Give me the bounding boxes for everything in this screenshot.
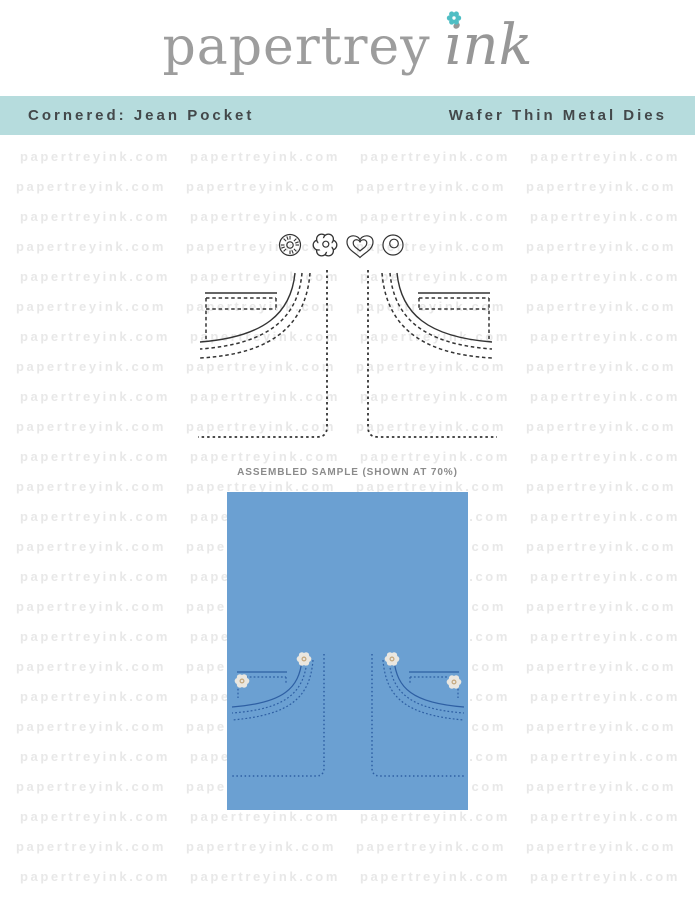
heart-die-icon <box>347 236 373 258</box>
product-image-page: papertreyink.compapertreyink.compapertre… <box>0 0 695 900</box>
watermark-text: papertreyink.com <box>526 292 695 322</box>
watermark-text: papertreyink.com <box>20 802 190 832</box>
watermark-text: papertreyink.com <box>526 532 695 562</box>
watermark-text: papertreyink.com <box>20 202 190 232</box>
watermark-text: papertreyink.com <box>530 502 695 532</box>
watermark-text: papertreyink.com <box>360 142 530 172</box>
watermark-text: papertreyink.com <box>530 382 695 412</box>
watermark-text: papertreyink.com <box>20 742 190 772</box>
watermark-text: papertreyink.com <box>356 172 526 202</box>
watermark-text: papertreyink.com <box>190 862 360 892</box>
watermark-row: papertreyink.compapertreyink.compapertre… <box>0 862 695 892</box>
watermark-text: papertreyink.com <box>20 142 190 172</box>
watermark-text: papertreyink.com <box>530 262 695 292</box>
flower-button-icon <box>385 652 400 665</box>
right-pocket-die <box>368 270 497 437</box>
watermark-text: papertreyink.com <box>530 862 695 892</box>
watermark-text: papertreyink.com <box>530 802 695 832</box>
watermark-text: papertreyink.com <box>16 232 186 262</box>
jean-pocket-die-outlines <box>190 265 505 447</box>
watermark-text: papertreyink.com <box>526 352 695 382</box>
sample-right-pocket <box>372 654 464 776</box>
flower-button-icon <box>235 674 250 687</box>
product-title-banner: Cornered: Jean Pocket Wafer Thin Metal D… <box>0 96 695 135</box>
stitched-button-die-icon <box>280 235 301 256</box>
watermark-text: papertreyink.com <box>530 562 695 592</box>
watermark-text: papertreyink.com <box>16 412 186 442</box>
watermark-text: papertreyink.com <box>530 142 695 172</box>
papertrey-ink-logo: papertrey ink <box>0 18 695 74</box>
watermark-text: papertreyink.com <box>360 862 530 892</box>
watermark-text: papertreyink.com <box>530 322 695 352</box>
flower-button-icon <box>297 652 312 665</box>
product-name: Cornered: Jean Pocket <box>28 107 254 124</box>
watermark-text: papertreyink.com <box>526 772 695 802</box>
watermark-text: papertreyink.com <box>20 862 190 892</box>
watermark-text: papertreyink.com <box>20 322 190 352</box>
watermark-text: papertreyink.com <box>16 832 186 862</box>
watermark-text: papertreyink.com <box>16 532 186 562</box>
watermark-text: papertreyink.com <box>16 712 186 742</box>
left-pocket-die <box>198 270 327 437</box>
watermark-text: papertreyink.com <box>20 502 190 532</box>
assembled-sample-card <box>227 492 468 810</box>
watermark-text: papertreyink.com <box>16 292 186 322</box>
assembled-sample-label: ASSEMBLED SAMPLE (SHOWN AT 70%) <box>0 467 695 478</box>
watermark-text: papertreyink.com <box>20 262 190 292</box>
flower-button-icon <box>447 675 462 688</box>
watermark-text: papertreyink.com <box>356 832 526 862</box>
watermark-text: papertreyink.com <box>20 562 190 592</box>
watermark-row: papertreyink.compapertreyink.compapertre… <box>0 142 695 172</box>
watermark-text: papertreyink.com <box>526 652 695 682</box>
watermark-text: papertreyink.com <box>20 622 190 652</box>
watermark-text: papertreyink.com <box>20 382 190 412</box>
watermark-text: papertreyink.com <box>16 172 186 202</box>
watermark-text: papertreyink.com <box>16 592 186 622</box>
sample-flower-buttons <box>235 652 462 688</box>
sample-left-pocket <box>232 654 324 776</box>
watermark-text: papertreyink.com <box>526 712 695 742</box>
logo-flower-icon <box>446 10 462 26</box>
watermark-text: papertreyink.com <box>526 412 695 442</box>
flower-die-icon <box>313 234 337 256</box>
product-type: Wafer Thin Metal Dies <box>449 107 667 124</box>
watermark-text: papertreyink.com <box>16 772 186 802</box>
watermark-text: papertreyink.com <box>530 742 695 772</box>
watermark-text: papertreyink.com <box>526 172 695 202</box>
watermark-text: papertreyink.com <box>20 682 190 712</box>
watermark-row: papertreyink.compapertreyink.compapertre… <box>0 832 695 862</box>
watermark-text: papertreyink.com <box>186 172 356 202</box>
grommet-die-icon <box>383 235 403 255</box>
watermark-text: papertreyink.com <box>16 352 186 382</box>
watermark-text: papertreyink.com <box>16 652 186 682</box>
watermark-text: papertreyink.com <box>186 832 356 862</box>
logo-wordmark-papertrey: papertrey <box>162 17 430 77</box>
assembled-sample-stitching <box>227 492 468 810</box>
watermark-text: papertreyink.com <box>530 622 695 652</box>
watermark-text: papertreyink.com <box>526 592 695 622</box>
watermark-text: papertreyink.com <box>526 832 695 862</box>
watermark-text: papertreyink.com <box>530 682 695 712</box>
watermark-text: papertreyink.com <box>530 202 695 232</box>
watermark-row: papertreyink.compapertreyink.compapertre… <box>0 172 695 202</box>
accessory-die-shapes <box>276 228 406 264</box>
logo-wordmark-ink: ink <box>445 18 533 74</box>
watermark-text: papertreyink.com <box>526 232 695 262</box>
watermark-text: papertreyink.com <box>190 142 360 172</box>
